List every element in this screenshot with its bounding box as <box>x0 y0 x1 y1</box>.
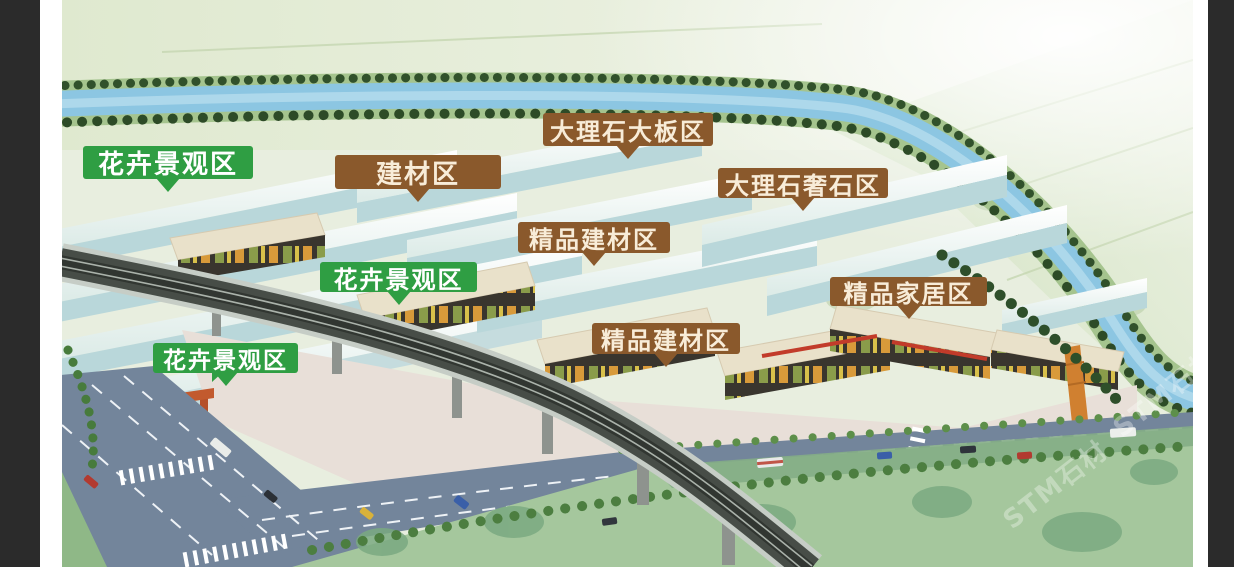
site-plan-scene: STM石材 STM石材 <box>62 0 1193 567</box>
zone-label-text: 精品家居区 <box>844 274 974 309</box>
zone-label-marble-slab: 大理石大板区 <box>543 113 713 146</box>
zone-label-premium-building-materials-2: 精品建材区 <box>592 323 740 354</box>
zone-label-text: 精品建材区 <box>601 321 731 356</box>
zone-label-text: 花卉景观区 <box>98 144 238 181</box>
zone-label-flower-landscape-3: 花卉景观区 <box>153 343 298 373</box>
zone-label-premium-home-furnishing: 精品家居区 <box>830 277 987 306</box>
zone-label-flower-landscape-1: 花卉景观区 <box>83 146 253 179</box>
screenshot-root: STM石材 STM石材 花卉景观区 建材区 大理石大板区 大理石奢石区 精品建材… <box>0 0 1234 567</box>
zone-label-text: 建材区 <box>376 154 460 191</box>
zone-label-building-materials: 建材区 <box>335 155 501 189</box>
zone-label-text: 花卉景观区 <box>334 260 464 295</box>
aerial-rendering: STM石材 STM石材 花卉景观区 建材区 大理石大板区 大理石奢石区 精品建材… <box>62 0 1193 567</box>
zone-label-text: 精品建材区 <box>529 220 659 255</box>
zone-label-text: 大理石奢石区 <box>725 166 881 201</box>
zone-label-text: 大理石大板区 <box>550 112 706 147</box>
zone-label-marble-luxury-stone: 大理石奢石区 <box>718 168 888 198</box>
zone-label-premium-building-materials-1: 精品建材区 <box>518 222 670 253</box>
right-dark-bar <box>1208 0 1234 567</box>
zone-label-flower-landscape-2: 花卉景观区 <box>320 262 477 292</box>
zone-label-text: 花卉景观区 <box>163 341 288 375</box>
left-dark-bar <box>0 0 40 567</box>
